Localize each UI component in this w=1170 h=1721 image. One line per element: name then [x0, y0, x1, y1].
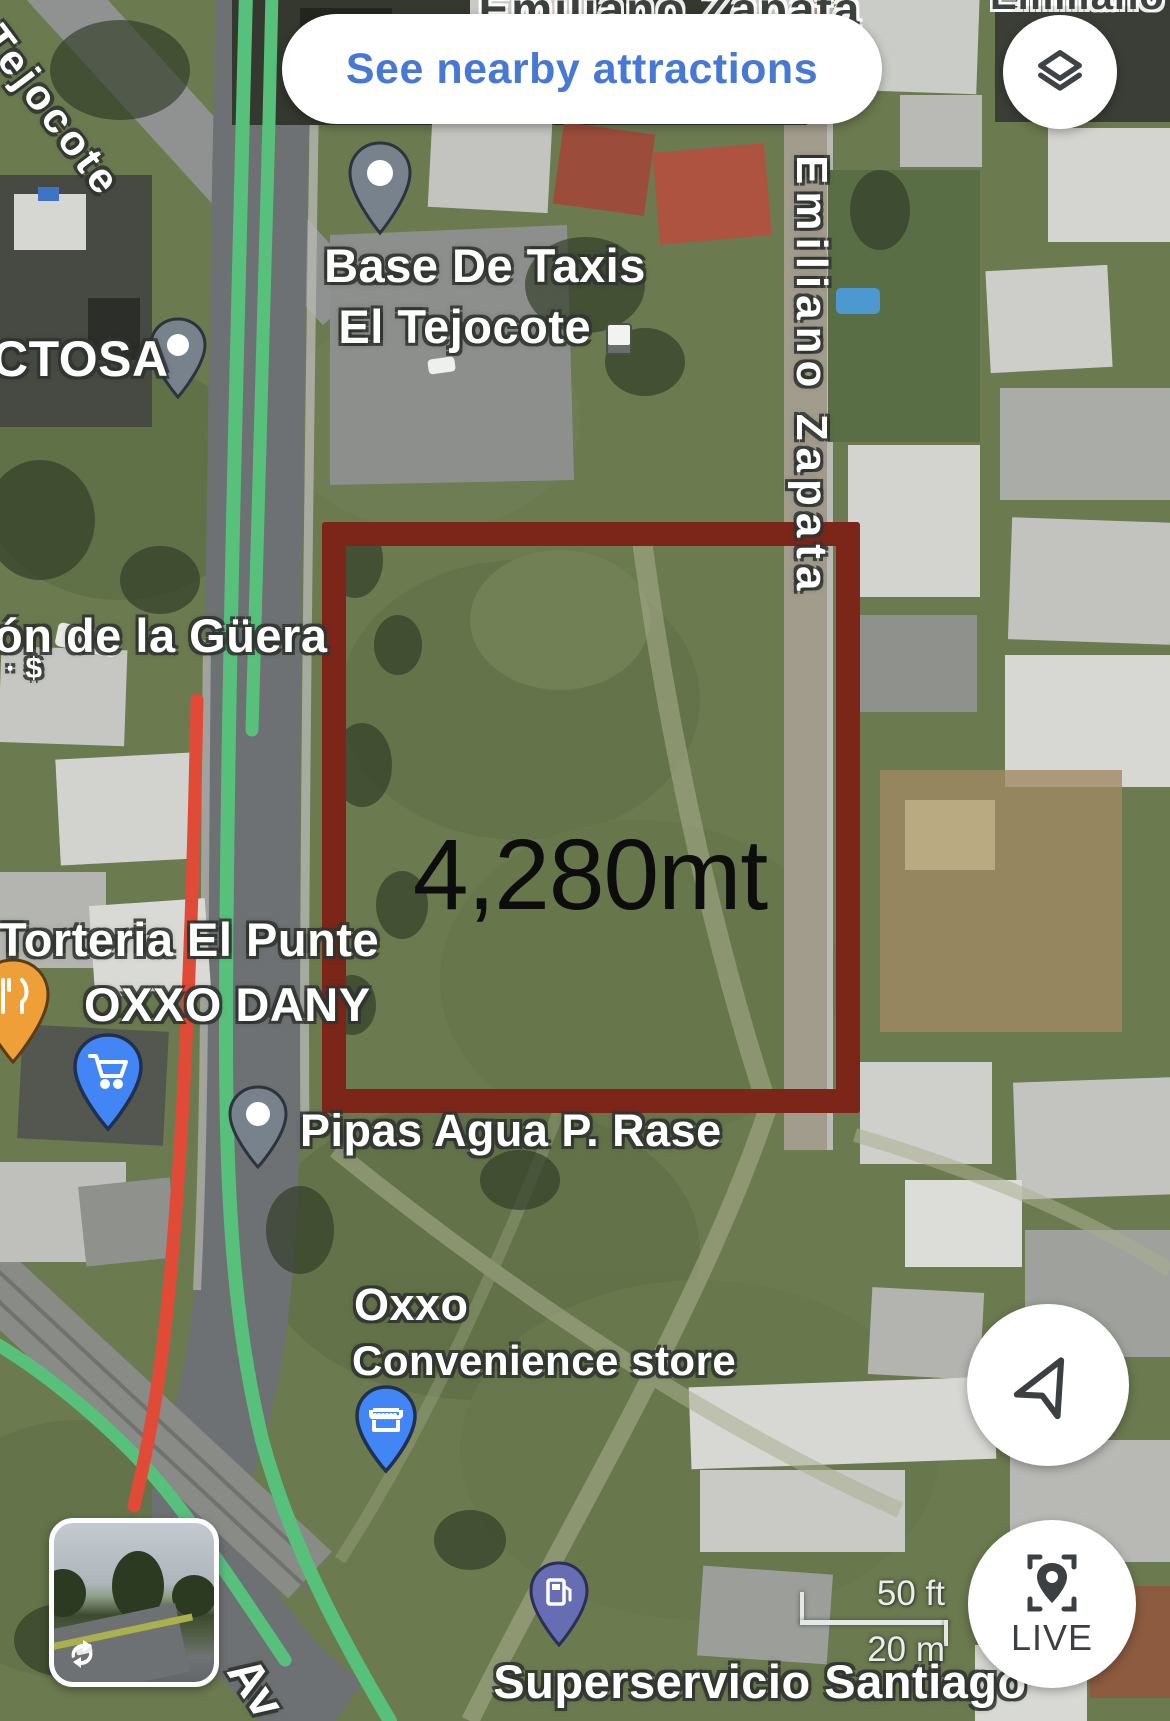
live-button-label: LIVE — [1011, 1617, 1093, 1659]
street-label-zapata-topright-clip: Emiliano Zapata — [990, 0, 1170, 15]
street-view-thumbnail[interactable] — [49, 1518, 219, 1687]
layers-button[interactable] — [1003, 15, 1117, 129]
poi-label-guera-price: · $ — [6, 652, 43, 686]
pin-dot-icon — [167, 334, 189, 356]
base-taxis-pin[interactable] — [345, 140, 415, 236]
poi-label-guera[interactable]: ón de la Güera — [0, 608, 327, 663]
my-location-button[interactable] — [967, 1304, 1129, 1466]
see-nearby-attractions-label: See nearby attractions — [346, 45, 818, 94]
plot-area-label: 4,280mt — [330, 818, 850, 933]
scale-line — [800, 1620, 948, 1625]
poi-label-oxxo[interactable]: Oxxo — [354, 1279, 469, 1331]
scale-metric: 20 m — [845, 1630, 945, 1670]
street-label-zapata-right: Emiliano Zapata — [786, 155, 836, 597]
poi-label-base-taxis[interactable]: Base De Taxis El Tejocote — [320, 238, 650, 355]
layers-icon — [1030, 42, 1090, 102]
restaurant-pin[interactable] — [0, 956, 56, 1066]
poi-label-superservicio[interactable]: Superservicio Santiago — [480, 1654, 1040, 1709]
scale-imperial: 50 ft — [845, 1574, 945, 1614]
live-view-button[interactable]: LIVE — [968, 1520, 1136, 1688]
poi-label-pipas[interactable]: Pipas Agua P. Rase — [300, 1105, 722, 1157]
streetview-compass-icon — [62, 1634, 102, 1674]
oxxo-store-pin[interactable] — [352, 1384, 420, 1474]
poi-label-ctosa[interactable]: CTOSA — [0, 330, 169, 388]
pipas-pin[interactable] — [226, 1084, 290, 1170]
pin-dot-icon — [246, 1102, 270, 1126]
poi-label-oxxo-type: Convenience store — [352, 1337, 736, 1385]
poi-label-torteria[interactable]: Torteria El Punte — [0, 912, 379, 967]
see-nearby-attractions-button[interactable]: See nearby attractions — [282, 14, 882, 124]
building-icon — [606, 323, 632, 355]
pin-dot-icon — [367, 160, 393, 186]
map-viewport[interactable]: 4,280mt Tejocote Emiliano Zapata Emilian… — [0, 0, 1170, 1721]
shopping-cart-pin[interactable] — [70, 1032, 146, 1132]
navigation-arrow-icon — [1008, 1345, 1088, 1425]
live-pin-icon — [1014, 1549, 1090, 1621]
street-label-zapata-top-right: Emiliano Zapata — [990, 0, 1170, 15]
poi-label-oxxo-dany[interactable]: OXXO DANY — [84, 977, 371, 1032]
fuel-station-pin[interactable] — [526, 1560, 592, 1648]
